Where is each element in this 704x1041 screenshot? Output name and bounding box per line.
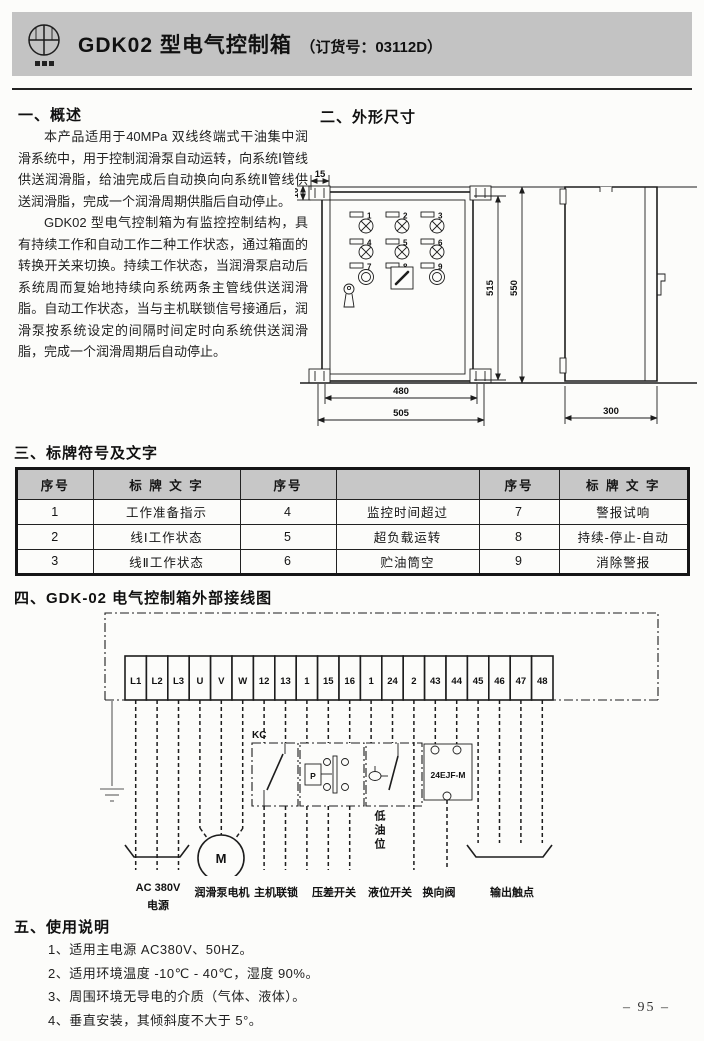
dim-label-505: 505 [393,408,410,419]
terminal-label: 48 [537,676,548,687]
brand-logo-icon [22,22,66,66]
interlock-contact-symbol: KC [252,730,298,806]
table-cell: 1 [17,499,93,524]
side-handle-icon [657,274,665,295]
dim-label-480: 480 [393,386,409,397]
terminal-label: 46 [494,676,505,687]
dim-label-15: 15 [315,169,326,180]
order-number: （订货号：03112D） [300,39,442,56]
caption-interlock: 主机联锁 [243,884,309,900]
table-row: 1工作准备指示4监控时间超过7警报试响 [17,499,688,524]
terminal-label: L3 [173,676,184,687]
ground-icon [100,700,124,801]
terminal-label: 15 [323,676,334,687]
terminal-label: 24 [387,676,398,687]
dim-label-10: 10 [295,188,301,199]
table-cell: 5 [240,524,336,549]
table-cell: 消除警报 [559,549,688,574]
labels-table: 序号 标 牌 文 字 序号 序号 标 牌 文 字 1工作准备指示4监控时间超过7… [16,468,689,575]
table-cell: 2 [17,524,93,549]
table-cell: 线Ⅰ工作状态 [93,524,240,549]
terminal-label: 47 [516,676,527,687]
terminal-label: 43 [430,676,441,687]
section-heading-overview: 一、概述 [18,104,82,125]
usage-item: 1、适用主电源 AC380V、50HZ。 [48,938,668,962]
terminal-label: W [238,676,247,687]
terminal-label: L1 [130,676,142,687]
terminal-label: L2 [152,676,163,687]
terminal-label: 2 [411,676,416,687]
table-cell: 超负载运转 [336,524,479,549]
usage-item: 3、周围环境无导电的介质（气体、液体）。 [48,985,668,1009]
usage-item: 2、适用环境温度 -10℃ - 40℃，湿度 90%。 [48,962,668,986]
page-title: GDK02 型电气控制箱 [78,34,292,57]
dim-label-515: 515 [485,279,496,296]
terminal-label: 13 [280,676,291,687]
terminal-label: 45 [473,676,484,687]
terminal-label: 1 [304,676,310,687]
table-cell: 持续-停止-自动 [559,524,688,549]
dim-label-300: 300 [603,406,619,417]
overview-text: 本产品适用于40MPa 双线终端式干油集中润滑系统中，用于控制润滑泵自动运转，向… [18,126,308,363]
col-header: 序号 [479,469,559,499]
pressure-letter: P [310,771,316,781]
col-header: 序号 [17,469,93,499]
terminal-label: 16 [344,676,355,687]
kc-label: KC [252,730,266,741]
table-cell: 7 [479,499,559,524]
header-band: GDK02 型电气控制箱 （订货号：03112D） [12,12,692,76]
terminal-label: 44 [451,676,462,687]
table-cell: 线Ⅱ工作状态 [93,549,240,574]
labels-table-body: 1工作准备指示4监控时间超过7警报试响2线Ⅰ工作状态5超负载运转8持续-停止-自… [17,499,688,574]
table-cell: 6 [240,549,336,574]
caption-valve: 换向阀 [412,884,466,900]
section-heading-dimensions: 二、外形尺寸 [320,106,416,127]
terminal-drop-lines [136,700,543,870]
table-cell: 监控时间超过 [336,499,479,524]
table-cell: 警报试响 [559,499,688,524]
pump-motor-symbol: M [198,835,244,876]
table-header-row: 序号 标 牌 文 字 序号 序号 标 牌 文 字 [17,469,688,499]
section-heading-wiring: 四、GDK-02 电气控制箱外部接线图 [14,587,272,608]
col-header [336,469,479,499]
table-cell: 8 [479,524,559,549]
terminal-label: 1 [368,676,374,687]
usage-item: 4、垂直安装，其倾斜度不大于 5°。 [48,1009,668,1033]
overview-paragraph-1: 本产品适用于40MPa 双线终端式干油集中润滑系统中，用于控制润滑泵自动运转，向… [18,126,308,212]
terminal-label: U [196,676,203,687]
terminal-label: 12 [259,676,270,687]
table-row: 2线Ⅰ工作状态5超负载运转8持续-停止-自动 [17,524,688,549]
table-cell: 3 [17,549,93,574]
table-row: 3线Ⅱ工作状态6贮油筒空9消除警报 [17,549,688,574]
page-number: – 95 – [623,1000,670,1016]
terminal-strip: L1L2L3UVW1213115161242434445464748 [125,656,553,700]
directional-valve-symbol: 24EJF-M [424,744,472,800]
dimension-drawing: 123456789 15 10 515 550 480 [295,150,700,440]
wiring-diagram: L1L2L3UVW1213115161242434445464748 M KC … [95,608,700,876]
table-cell: 工作准备指示 [93,499,240,524]
overview-paragraph-2: GDK02 型电气控制箱为有监控控制结构，具有持续工作和自动工作二种工作状态，通… [18,212,308,363]
dim-label-550: 550 [509,280,520,296]
col-header: 序号 [240,469,336,499]
usage-list: 1、适用主电源 AC380V、50HZ。 2、适用环境温度 -10℃ - 40℃… [48,938,668,1032]
table-cell: 贮油筒空 [336,549,479,574]
motor-letter: M [216,851,227,866]
col-header: 标 牌 文 字 [93,469,240,499]
logo-characters [22,61,66,66]
section-heading-labels: 三、标牌符号及文字 [14,442,158,463]
output-brace [467,845,552,857]
valve-model: 24EJF-M [431,770,466,780]
cabinet-side-view [560,187,665,381]
table-cell: 4 [240,499,336,524]
terminal-label: V [218,676,225,687]
table-cell: 9 [479,549,559,574]
document-page: GDK02 型电气控制箱 （订货号：03112D） 一、概述 本产品适用于40M… [0,0,704,1041]
caption-low-oil-level: 低油位 [371,810,387,872]
section-heading-usage: 五、使用说明 [14,916,110,937]
col-header: 标 牌 文 字 [559,469,688,499]
pressure-switch-symbol: P [300,743,364,806]
header-divider [12,88,692,90]
caption-output: 输出触点 [477,884,547,900]
